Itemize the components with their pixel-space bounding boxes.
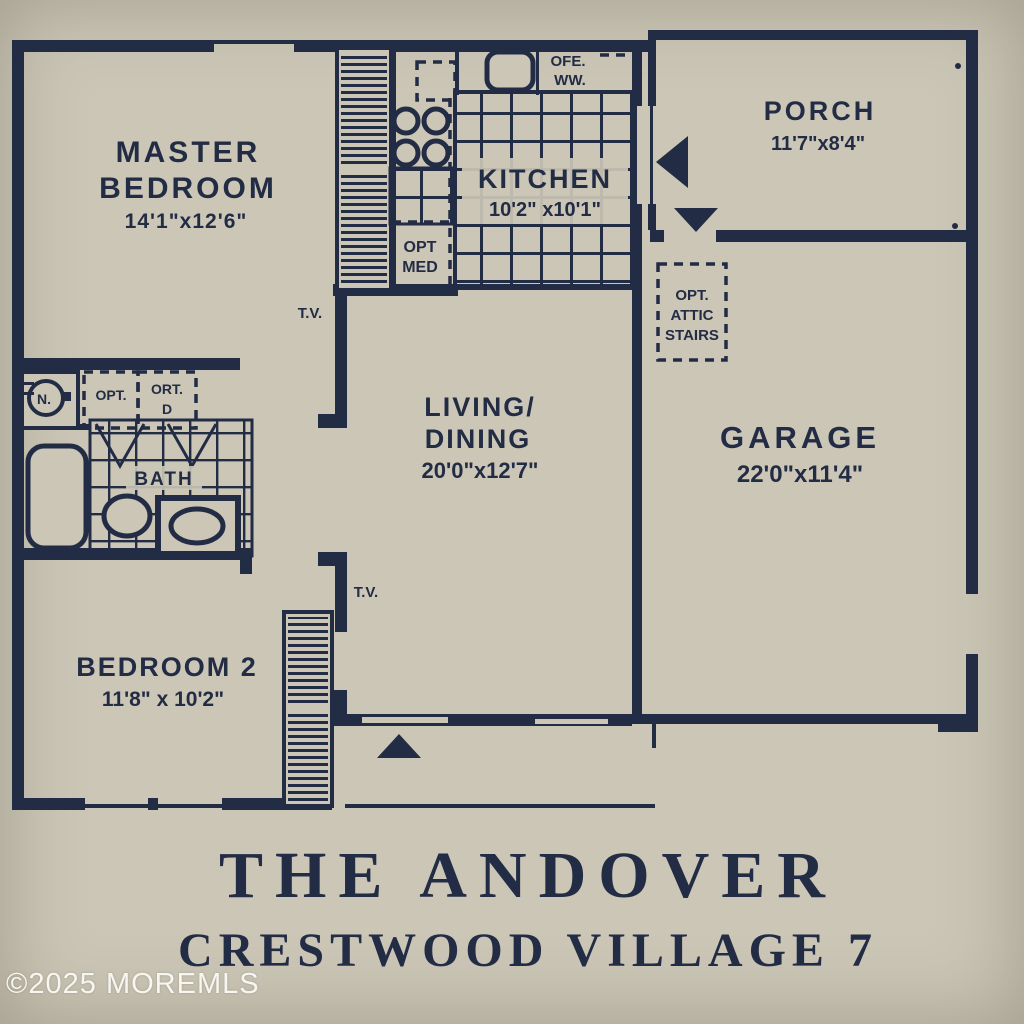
svg-text:KITCHEN: KITCHEN <box>478 164 612 194</box>
watermark: ©2025 MOREMLS <box>6 968 260 1001</box>
svg-text:22'0"x11'4": 22'0"x11'4" <box>737 461 863 488</box>
washer-label: N. <box>37 391 51 407</box>
svg-text:PORCH: PORCH <box>764 96 877 126</box>
svg-text:D: D <box>162 401 172 417</box>
room-label-garage: GARAGE 22'0"x11'4" <box>720 420 880 488</box>
master-closet <box>337 48 391 290</box>
svg-text:11'8" x 10'2": 11'8" x 10'2" <box>102 688 224 711</box>
svg-text:WW.: WW. <box>554 72 586 89</box>
kitchen-tile-floor-2 <box>390 168 455 224</box>
svg-text:BEDROOM 2: BEDROOM 2 <box>76 652 258 682</box>
svg-text:14'1"x12'6": 14'1"x12'6" <box>125 210 248 233</box>
kitchen-sink <box>487 52 533 90</box>
optional-appliance-outline <box>417 62 455 100</box>
room-label-porch: PORCH 11'7"x8'4" <box>764 96 877 155</box>
garage-door-arrow-icon <box>674 208 718 232</box>
room-label-bedroom2: BEDROOM 2 11'8" x 10'2" <box>76 652 258 711</box>
opt-attic-stairs-label: OPT. ATTIC STAIRS <box>665 287 719 344</box>
room-label-living-dining: LIVING/ DINING 20'0"x12'7" <box>422 392 539 483</box>
bedroom2-closet <box>284 612 332 806</box>
svg-text:OFE.: OFE. <box>550 53 585 70</box>
opt-med-label: OPT MED <box>402 239 438 276</box>
svg-text:STAIRS: STAIRS <box>665 327 719 344</box>
room-label-kitchen: KITCHEN 10'2" x10'1" <box>462 158 628 224</box>
bathtub <box>28 446 86 548</box>
plan-title: THE ANDOVER <box>219 839 837 912</box>
svg-text:OPT: OPT <box>404 239 437 256</box>
svg-text:11'7"x8'4": 11'7"x8'4" <box>771 133 865 155</box>
room-label-bath: BATH <box>126 466 202 490</box>
bath-area <box>22 372 252 556</box>
plan-subtitle: CRESTWOOD VILLAGE 7 <box>178 924 878 977</box>
svg-text:ATTIC: ATTIC <box>670 307 713 324</box>
svg-text:LIVING/: LIVING/ <box>424 392 536 422</box>
counter-dashed-corner <box>600 55 636 77</box>
porch-door-arrow-icon <box>656 136 688 188</box>
stove-burners-icon <box>394 109 448 165</box>
tv-label-2: T.V. <box>354 584 378 601</box>
svg-text:MASTER: MASTER <box>116 136 261 169</box>
svg-text:DINING: DINING <box>425 424 532 454</box>
sink <box>171 509 223 543</box>
svg-text:OPT.: OPT. <box>675 287 708 304</box>
svg-text:OPT.: OPT. <box>95 387 126 403</box>
svg-text:20'0"x12'7": 20'0"x12'7" <box>422 458 539 483</box>
svg-text:10'2" x10'1": 10'2" x10'1" <box>489 199 601 221</box>
ofe-ww-label: OFE. WW. <box>550 53 585 89</box>
svg-text:BEDROOM: BEDROOM <box>99 172 277 205</box>
entry-door-arrow-icon <box>377 734 421 758</box>
tv-label-1: T.V. <box>298 305 322 322</box>
svg-text:BATH: BATH <box>134 469 193 490</box>
floor-plan-drawing: MASTER BEDROOM 14'1"x12'6" KITCHEN 10'2"… <box>0 0 1024 1024</box>
svg-text:GARAGE: GARAGE <box>720 420 880 455</box>
svg-text:MED: MED <box>402 259 438 276</box>
svg-text:ORT.: ORT. <box>151 381 183 397</box>
toilet <box>104 496 150 536</box>
room-label-master-bedroom: MASTER BEDROOM 14'1"x12'6" <box>99 136 277 233</box>
floor-plan-page: MASTER BEDROOM 14'1"x12'6" KITCHEN 10'2"… <box>0 0 1024 1024</box>
